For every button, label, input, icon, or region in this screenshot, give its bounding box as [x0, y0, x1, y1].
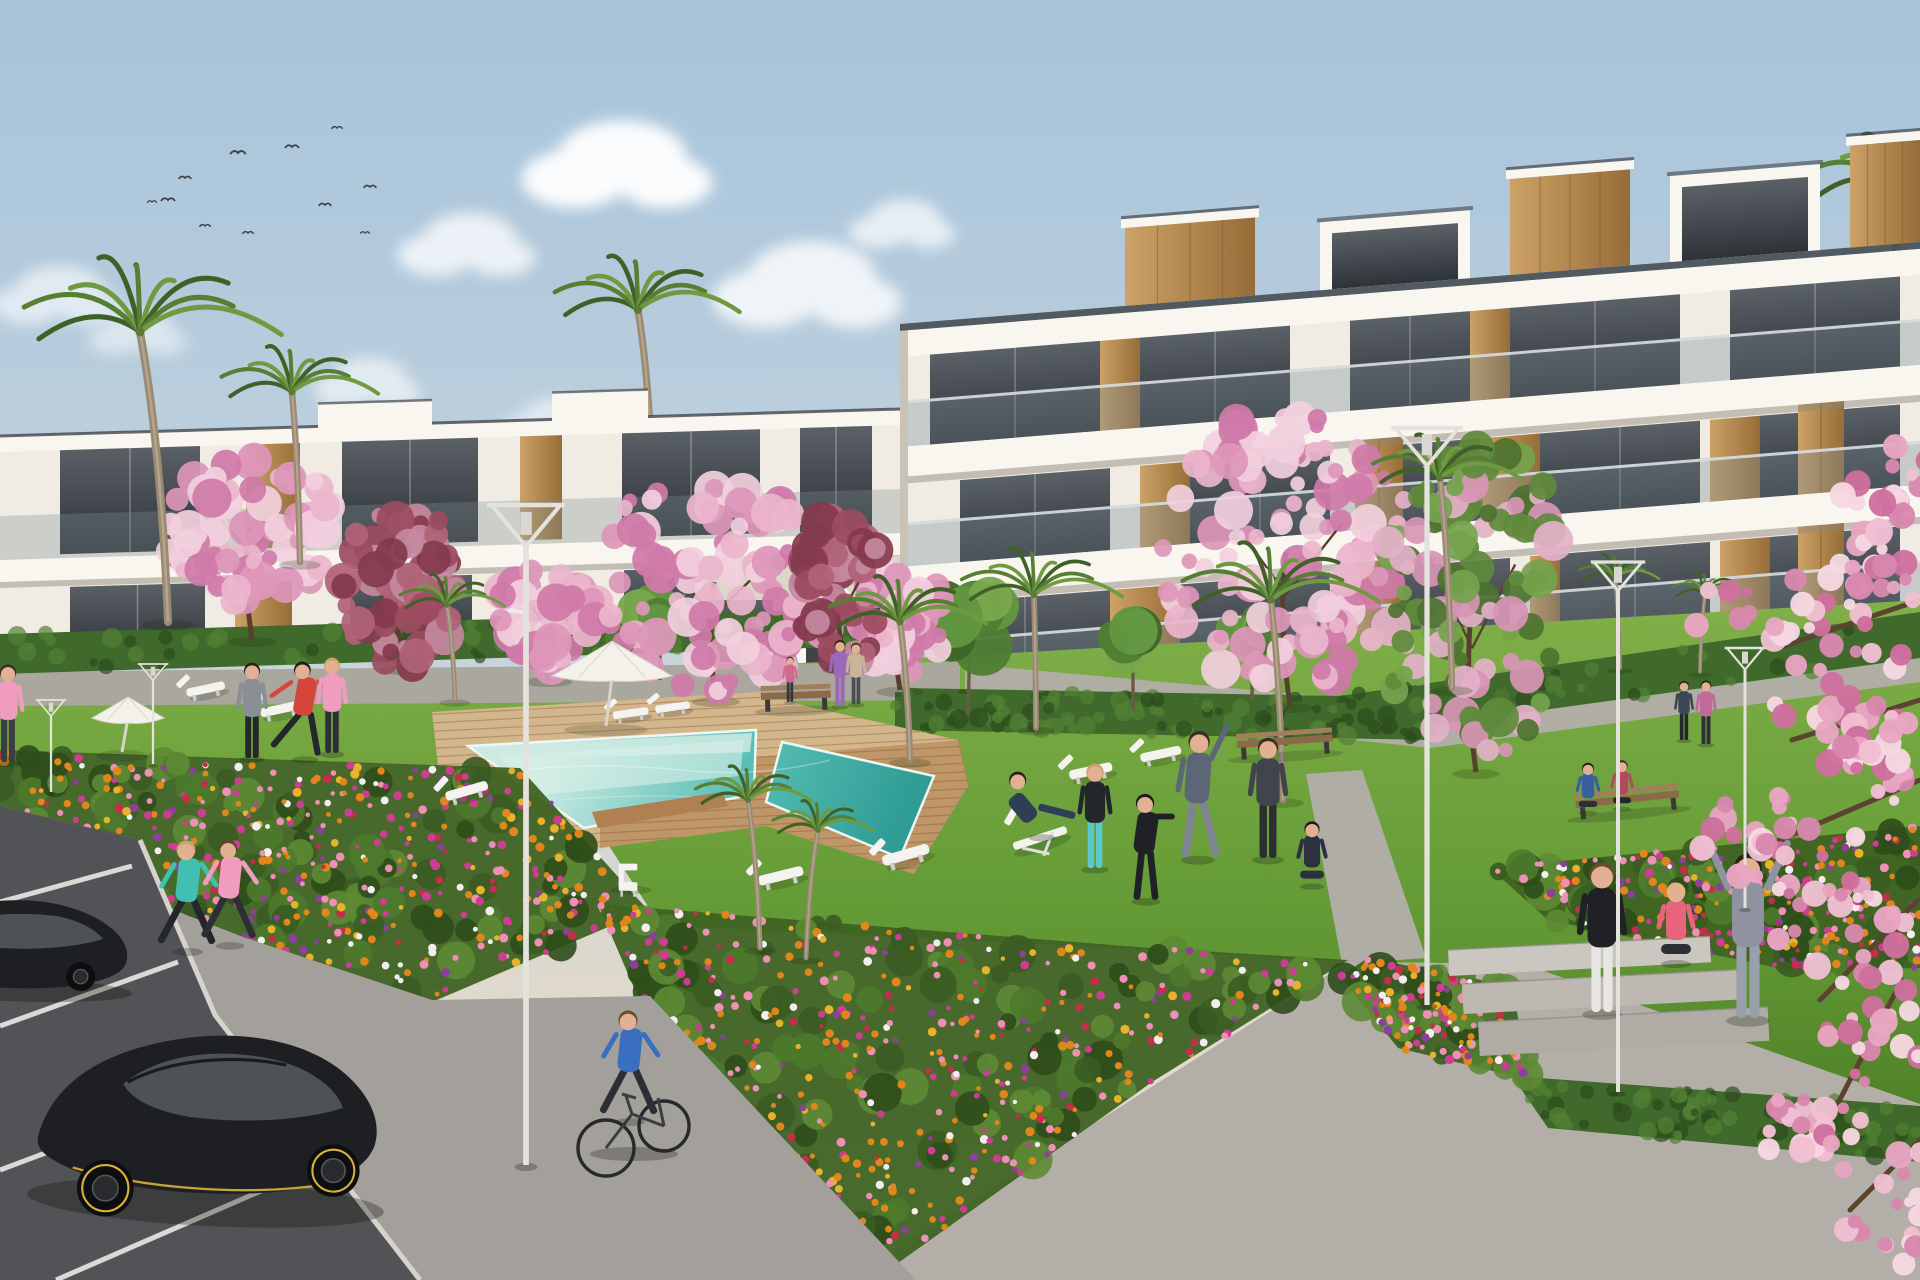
- render-canvas: [0, 0, 1920, 1280]
- architectural-render: [0, 0, 1920, 1280]
